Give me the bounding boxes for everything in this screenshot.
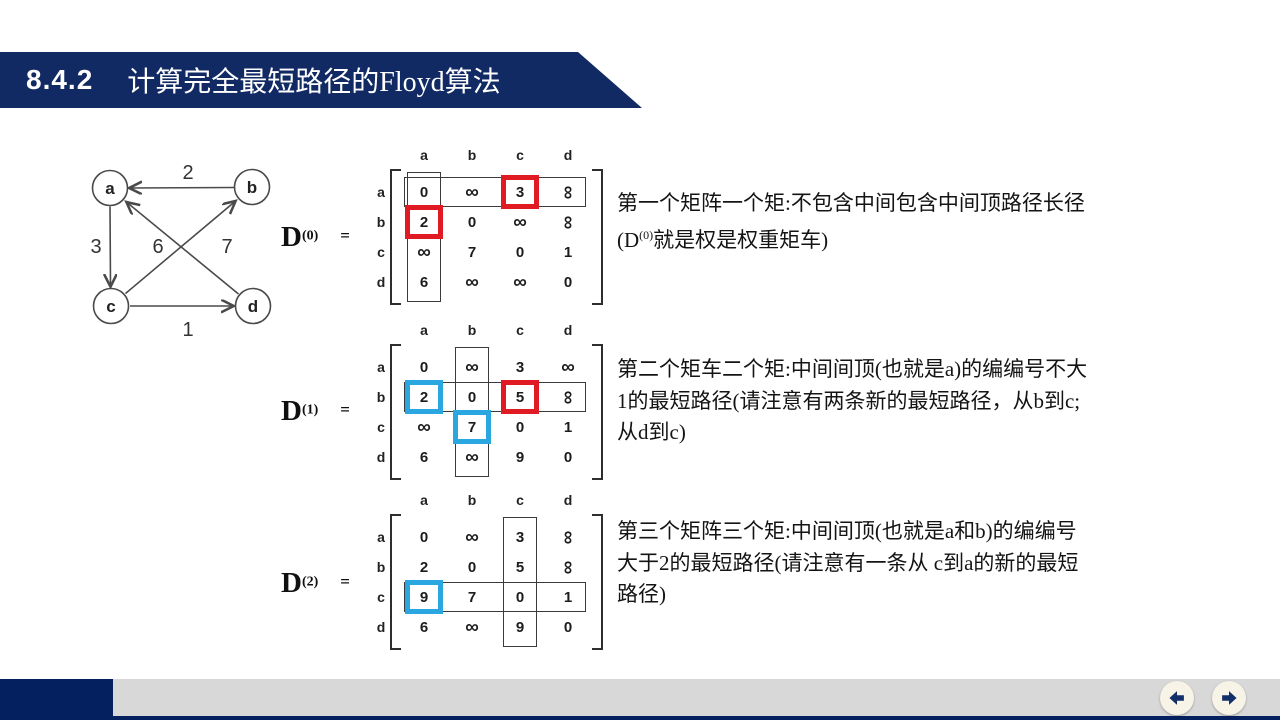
matrix-cell: 3 — [496, 352, 544, 382]
matrix-value: 9 — [516, 449, 524, 466]
matrix-col-header: d — [544, 490, 592, 510]
matrix-value: 0 — [516, 244, 524, 261]
matrix-value: 3 — [516, 359, 524, 376]
edge-weight: 2 — [182, 162, 193, 184]
matrix-name: D — [281, 395, 302, 427]
matrix-cell: 0 — [496, 237, 544, 267]
section-number: 8.4.2 — [26, 64, 93, 96]
matrix-value: 0 — [420, 359, 428, 376]
edge-a-c — [110, 207, 111, 287]
matrix-cell: 1 — [544, 237, 592, 267]
matrix-value: ∞ — [558, 530, 577, 544]
note-matrix-d0: 第一个矩阵一个矩:不包含中间包含中间顶路径长径(D(0)就是权是权重矩车) — [617, 188, 1169, 256]
matrix-col-header: a — [400, 145, 448, 165]
matrix-value: 0 — [564, 619, 572, 636]
matrix-row-header: b — [370, 382, 392, 412]
matrix-cell: ∞ — [448, 267, 496, 297]
matrix-cell: ∞ — [544, 552, 592, 582]
note-line: 第二个矩车二个矩:中间间顶(也就是a)的编编号不大 — [617, 354, 1169, 386]
matrix-col-header: d — [544, 145, 592, 165]
note-text: 路径) — [617, 582, 666, 606]
prev-slide-button[interactable] — [1160, 681, 1194, 715]
matrix-value: 0 — [516, 419, 524, 436]
matrix-value: 0 — [420, 529, 428, 546]
highlight-box-blue — [405, 380, 443, 414]
bottom-accent-block — [0, 679, 113, 720]
matrix-col-header: a — [400, 490, 448, 510]
matrix-value: ∞ — [417, 418, 431, 437]
matrix-col-header: a — [400, 320, 448, 340]
matrix-cell: ∞ — [496, 267, 544, 297]
matrix-value: 6 — [420, 449, 428, 466]
node-c-label: c — [106, 297, 115, 316]
matrix-col-header: d — [544, 320, 592, 340]
matrix-row-header: b — [370, 207, 392, 237]
matrix-value: ∞ — [465, 528, 479, 547]
matrix-cell: ∞ — [496, 207, 544, 237]
note-text: 第三个矩阵三个矩:中间间顶(也就是a和b)的编编号 — [617, 519, 1077, 543]
matrix-label-d2: D(2)= — [281, 567, 350, 600]
matrix-row-header: a — [370, 352, 392, 382]
equals-sign: = — [340, 572, 350, 592]
equals-sign: = — [340, 226, 350, 246]
matrix-label-d1: D(1)= — [281, 395, 350, 428]
node-a-label: a — [105, 179, 115, 198]
matrix-cell: 0 — [448, 552, 496, 582]
matrix-row-header: a — [370, 177, 392, 207]
matrix-cell: 0 — [544, 267, 592, 297]
matrix-cell: 0 — [544, 612, 592, 642]
edge-b-a — [130, 188, 234, 189]
note-superscript: (0) — [639, 228, 653, 242]
matrix-cell: 1 — [544, 412, 592, 442]
matrix-row-header: c — [370, 412, 392, 442]
matrix-row-header: d — [370, 442, 392, 472]
note-line: 第一个矩阵一个矩:不包含中间包含中间顶路径长径 — [617, 188, 1169, 220]
matrix-col-header: b — [448, 145, 496, 165]
matrix-cell: 0 — [400, 352, 448, 382]
node-d-label: d — [248, 297, 258, 316]
matrix-bracket-right — [592, 169, 603, 305]
matrix-value: ∞ — [513, 273, 527, 292]
matrix-cell: ∞ — [400, 412, 448, 442]
matrix-cell: 7 — [448, 237, 496, 267]
matrix-value: 1 — [564, 419, 572, 436]
highlight-box-red — [501, 175, 539, 209]
matrix-row-header: c — [370, 582, 392, 612]
matrix-label-d0: D(0)= — [281, 221, 350, 254]
matrix-row-header: d — [370, 267, 392, 297]
matrix-cell: ∞ — [448, 522, 496, 552]
note-line: 大于2的最短路径(请注意有一条从 c到a的新的最短 — [617, 548, 1169, 580]
matrix-value: 1 — [564, 244, 572, 261]
highlight-box-red — [501, 380, 539, 414]
matrix-value: ∞ — [558, 215, 577, 229]
matrix-value: ∞ — [558, 560, 577, 574]
matrix-value: ∞ — [513, 213, 527, 232]
matrix-cell: 9 — [496, 442, 544, 472]
note-text: 从d到c) — [617, 420, 686, 444]
matrix-d0: abcdabcd0∞3∞20∞∞∞7016∞∞0 — [370, 145, 604, 315]
right-arrow-icon — [1218, 686, 1240, 710]
matrix-value: ∞ — [561, 358, 575, 377]
col-outline — [503, 517, 537, 647]
matrix-cell: 0 — [448, 207, 496, 237]
note-text: 第一个矩阵一个矩:不包含中间包含中间顶路径长径 — [617, 191, 1085, 215]
matrix-cell: 6 — [400, 442, 448, 472]
note-line: (D(0)就是权是权重矩车) — [617, 220, 1169, 257]
matrix-cell: 0 — [496, 412, 544, 442]
matrix-name: D — [281, 567, 302, 599]
note-text: 1的最短路径(请注意有两条新的最短路径，从b到c; — [617, 389, 1080, 413]
matrix-row-header: c — [370, 237, 392, 267]
matrix-d1: abcdabcd0∞3∞205∞∞7016∞90 — [370, 320, 604, 490]
matrix-cell: 6 — [400, 612, 448, 642]
matrix-value: ∞ — [465, 273, 479, 292]
highlight-box-blue — [405, 580, 443, 614]
page-title: 计算完全最短路径的Floyd算法 — [127, 60, 500, 100]
note-line: 路径) — [617, 579, 1169, 611]
matrix-row-header: d — [370, 612, 392, 642]
highlight-box-red — [405, 205, 443, 239]
note-line: 第三个矩阵三个矩:中间间顶(也就是a和b)的编编号 — [617, 516, 1169, 548]
matrix-sup: (2) — [302, 575, 318, 590]
edge-weight: 7 — [221, 236, 232, 258]
edge-weight: 3 — [90, 236, 101, 258]
note-text: 第二个矩车二个矩:中间间顶(也就是a)的编编号不大 — [617, 357, 1087, 381]
bottom-accent-strip — [0, 716, 1280, 720]
title-banner: 8.4.2 计算完全最短路径的Floyd算法 — [0, 52, 642, 108]
matrix-name: D — [281, 221, 302, 253]
note-line: 从d到c) — [617, 417, 1169, 449]
note-text: 就是权是权重矩车) — [653, 228, 828, 252]
matrix-cell: ∞ — [544, 352, 592, 382]
matrix-cell: 2 — [400, 552, 448, 582]
graph: 2 3 6 7 1 a b c d — [60, 148, 292, 356]
matrix-bracket-right — [592, 344, 603, 480]
matrix-value: 0 — [564, 449, 572, 466]
note-text: (D — [617, 228, 639, 252]
note-line: 1的最短路径(请注意有两条新的最短路径，从b到c; — [617, 386, 1169, 418]
matrix-bracket-right — [592, 514, 603, 650]
slide: 8.4.2 计算完全最短路径的Floyd算法 2 3 6 7 1 a b c d… — [0, 0, 1280, 720]
matrix-col-header: c — [496, 145, 544, 165]
equals-sign: = — [340, 400, 350, 420]
matrix-value: 0 — [468, 559, 476, 576]
left-arrow-icon — [1166, 686, 1188, 710]
matrix-cell: 0 — [544, 442, 592, 472]
matrix-col-header: c — [496, 320, 544, 340]
matrix-row-header: b — [370, 552, 392, 582]
edge-weight: 6 — [152, 236, 163, 258]
highlight-box-blue — [453, 410, 491, 444]
matrix-col-header: c — [496, 490, 544, 510]
matrix-col-header: b — [448, 320, 496, 340]
note-text: 大于2的最短路径(请注意有一条从 c到a的新的最短 — [617, 551, 1078, 575]
bottom-bar — [0, 679, 1280, 720]
next-slide-button[interactable] — [1212, 681, 1246, 715]
matrix-value: 2 — [420, 559, 428, 576]
matrix-cell: ∞ — [544, 207, 592, 237]
matrix-value: 6 — [420, 619, 428, 636]
matrix-sup: (1) — [302, 403, 318, 418]
matrix-row-header: a — [370, 522, 392, 552]
matrix-value: 0 — [468, 214, 476, 231]
matrix-cell: ∞ — [544, 522, 592, 552]
node-b-label: b — [247, 178, 257, 197]
note-matrix-d2: 第三个矩阵三个矩:中间间顶(也就是a和b)的编编号大于2的最短路径(请注意有一条… — [617, 516, 1169, 611]
matrix-cell: ∞ — [448, 612, 496, 642]
matrix-col-header: b — [448, 490, 496, 510]
matrix-value: 0 — [564, 274, 572, 291]
matrix-value: ∞ — [465, 618, 479, 637]
note-matrix-d1: 第二个矩车二个矩:中间间顶(也就是a)的编编号不大1的最短路径(请注意有两条新的… — [617, 354, 1169, 449]
matrix-value: 7 — [468, 244, 476, 261]
matrix-d2: abcdabcd0∞3∞205∞97016∞90 — [370, 490, 604, 660]
matrix-sup: (0) — [302, 229, 318, 244]
matrix-cell: 0 — [400, 522, 448, 552]
edge-weight: 1 — [182, 319, 193, 341]
